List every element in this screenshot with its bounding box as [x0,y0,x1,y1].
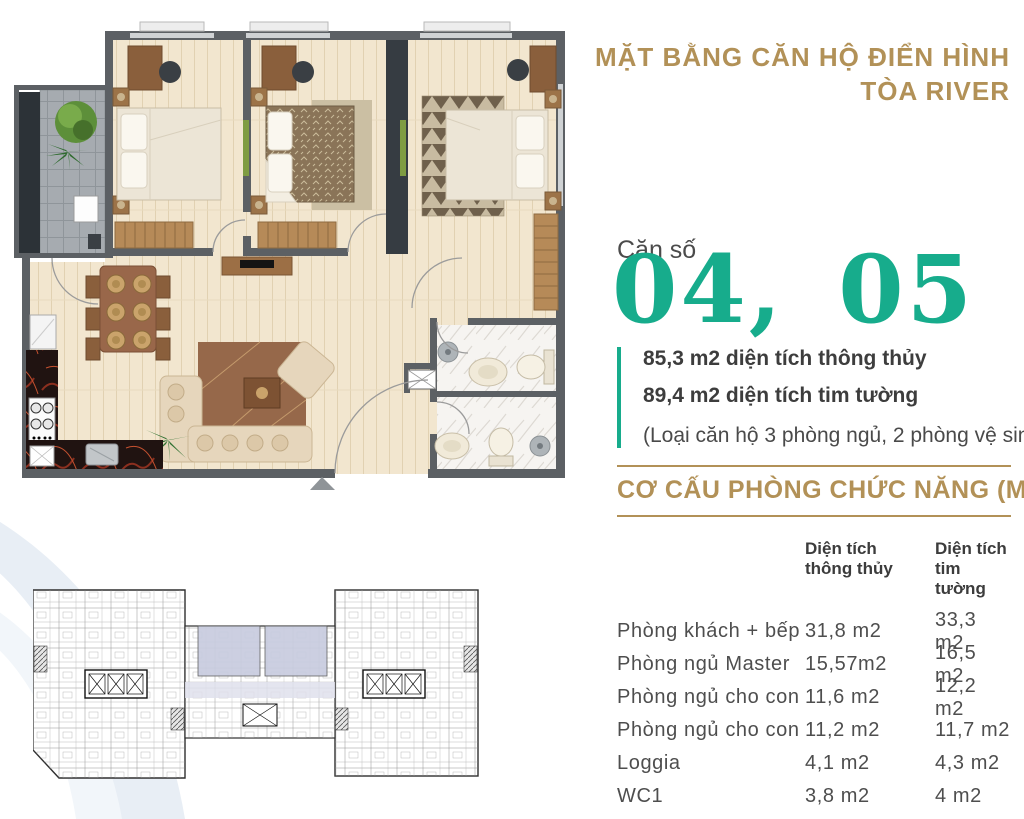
desk [262,46,296,90]
highlighted-unit-04 [198,626,260,676]
column-header-tim-tuong: Diện tích tim tường [935,539,1011,599]
wardrobe [115,222,193,248]
page-title-line2: TÒA RIVER [530,74,1010,108]
table-rows: Phòng khách + bếp 31,8 m2 33,3 m2 Phòng … [617,615,1011,819]
unit-area-block: 85,3 m2 diện tích thông thủy 89,4 m2 diệ… [617,347,1013,448]
table-row: Loggia 4,1 m2 4,3 m2 [617,747,1011,780]
building-floor-plate [33,588,480,780]
stove [29,398,55,444]
toilet [489,428,513,466]
chair [159,61,181,83]
page-title: MẶT BẰNG CĂN HỘ ĐIỂN HÌNH TÒA RIVER [530,40,1010,108]
wing-center [185,626,335,738]
room-structure-table: CƠ CẤU PHÒNG CHỨC NĂNG (M2) Diện tích th… [617,465,1011,819]
table-row: Phòng ngủ cho con 11,6 m2 12,2 m2 [617,681,1011,714]
wardrobe [258,222,336,248]
duct-box [408,370,436,389]
unit-numbers: 04, 05 [612,240,975,340]
table-row: WC1 3,8 m2 4 m2 [617,780,1011,813]
dining-area [86,266,170,360]
table-header-row: Diện tích thông thủy Diện tích tim tường [617,539,1011,599]
area-thong-thuy: 85,3 m2 diện tích thông thủy [643,347,1013,371]
table-title: CƠ CẤU PHÒNG CHỨC NĂNG (M2) [617,467,1011,515]
wing-left [33,590,185,778]
bathroom-wc2 [435,397,556,469]
desk [128,46,162,90]
wardrobe [534,214,558,310]
area-tim-tuong: 89,4 m2 diện tích tim tường [643,384,1013,408]
green-accent-1 [243,120,249,176]
entrance-arrow [310,477,335,490]
green-accent-2 [400,120,406,176]
page-title-line1: MẶT BẰNG CĂN HỘ ĐIỂN HÌNH [530,40,1010,74]
apartment-floor-plan [4,16,580,502]
table-rule-bottom [617,515,1011,517]
table-row: WC2 4,2 m2 4,4 m2 [617,813,1011,819]
corridor-highlight [185,682,335,698]
wing-right [335,590,478,776]
loggia-box [88,234,101,249]
unit-type-note: (Loại căn hộ 3 phòng ngủ, 2 phòng vệ sin… [643,424,1013,448]
chair [507,59,529,81]
highlighted-unit-05 [265,626,327,676]
column-header-thong-thuy: Diện tích thông thủy [805,539,935,599]
desk [530,46,556,92]
brochure-page: MẶT BẰNG CĂN HỘ ĐIỂN HÌNH TÒA RIVER Căn … [0,0,1024,819]
chair [292,61,314,83]
table-row: Phòng ngủ cho con 11,2 m2 11,7 m2 [617,714,1011,747]
tv-console [222,257,292,275]
washing-machine [74,196,98,222]
loggia [14,90,105,256]
